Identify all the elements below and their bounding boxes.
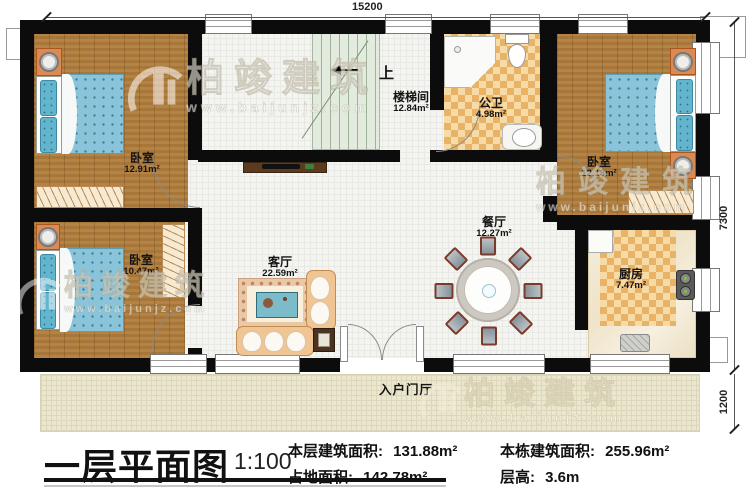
- stairs: [312, 32, 380, 150]
- wardrobe: [628, 190, 694, 214]
- stove-burner: [680, 286, 691, 297]
- dimension-line-right-lower: [734, 374, 735, 430]
- room-label-bathroom: 公卫 4.98m²: [476, 97, 506, 120]
- room-label-stairwell: 楼梯间 12.84m²: [393, 91, 429, 114]
- dining-chair: [481, 327, 497, 346]
- bed-pillow: [40, 80, 57, 116]
- window: [590, 354, 670, 374]
- room-label-bedroom-top-left: 卧室 12.91m²: [124, 152, 159, 175]
- nightstand-knob: [39, 52, 59, 72]
- window: [453, 354, 545, 374]
- bathroom-sink-basin: [512, 128, 536, 147]
- dimension-line-right-upper: [734, 22, 735, 370]
- room-label-bedroom-top-right: 卧室 12.18m²: [581, 156, 616, 179]
- bed-pillow: [676, 79, 693, 114]
- dining-chair: [524, 283, 543, 299]
- nightstand: [36, 48, 62, 76]
- room-label-kitchen: 厨房 7.47m²: [616, 268, 646, 291]
- dining-table-center: [482, 284, 496, 298]
- tv: [262, 164, 300, 169]
- sofa-cushion: [264, 331, 284, 352]
- window: [150, 354, 207, 374]
- stat-floor-height: 层高: 3.6m: [500, 466, 579, 487]
- wall-bathroom-left: [430, 32, 444, 110]
- nightstand-knob: [38, 227, 58, 247]
- dimension-right-lower: 1200: [718, 390, 730, 414]
- wall-bedroomBL-living-upper: [188, 222, 202, 306]
- wall-kitchen-left: [575, 222, 588, 330]
- window: [692, 268, 720, 312]
- shower-drain: [454, 46, 461, 53]
- nightstand: [670, 48, 696, 75]
- sofa-cushion: [310, 276, 330, 300]
- entry-door-leaf: [416, 326, 424, 362]
- dimension-top: 15200: [352, 1, 383, 13]
- dining-chair: [480, 237, 496, 256]
- stove-burner: [680, 273, 691, 284]
- floor-plan: 上: [0, 0, 750, 494]
- bed-pillow: [40, 292, 56, 329]
- nightstand: [670, 152, 696, 179]
- fridge: [588, 230, 613, 253]
- wall-bathroom-bottom: [430, 150, 545, 162]
- stat-floor-area: 本层建筑面积: 131.88m²: [288, 440, 457, 461]
- room-label-living-room: 客厅 22.59m²: [262, 256, 297, 279]
- sofa-cushion: [310, 301, 330, 325]
- wall-bedrooms-left: [20, 208, 202, 222]
- wall-left: [20, 20, 34, 372]
- coffee-table: [256, 292, 298, 318]
- entry-opening: [340, 358, 424, 372]
- dimension-right-upper: 7300: [718, 206, 730, 230]
- dining-chair: [435, 283, 454, 299]
- stairs-direction-label: 上: [379, 62, 394, 83]
- bed-sheet: [655, 74, 670, 152]
- bed-pillow: [676, 115, 693, 151]
- window: [692, 176, 720, 220]
- plan-title: 一层平面图: [44, 438, 229, 490]
- bed-pillow: [40, 117, 57, 153]
- nightstand-knob: [673, 52, 693, 72]
- sofa-cushion: [242, 331, 262, 352]
- window: [215, 354, 300, 374]
- window: [692, 42, 720, 114]
- sofa-cushion: [286, 331, 306, 352]
- wall-bedroomTL-stair: [188, 32, 202, 160]
- stairs-up-arrow: [341, 69, 358, 71]
- side-table-lamp: [318, 333, 330, 347]
- stat-land-area: 占地面积: 142.78m²: [288, 466, 427, 487]
- nightstand: [36, 224, 60, 250]
- room-label-bedroom-bottom-left: 卧室 10.47m²: [123, 254, 158, 277]
- coffee-table-decor: [263, 298, 273, 308]
- remote: [305, 164, 314, 169]
- wall-bedroomTR-left-stub: [543, 196, 557, 222]
- kitchen-sink: [620, 334, 650, 352]
- dimension-line-top: [45, 17, 705, 18]
- room-label-dining-room: 餐厅 12.27m²: [476, 216, 511, 239]
- room-label-entry-foyer: 入户门厅: [379, 384, 433, 397]
- stairs-up-arrowhead: [331, 65, 341, 75]
- coffee-table-decor: [283, 297, 287, 301]
- plan-scale: 1:100: [234, 448, 292, 475]
- bed-pillow: [40, 254, 56, 291]
- wardrobe: [162, 224, 185, 298]
- nightstand-knob: [673, 156, 693, 176]
- wardrobe: [36, 186, 124, 208]
- toilet-tank: [505, 34, 529, 44]
- stat-building-area: 本栋建筑面积: 255.96m²: [500, 440, 669, 461]
- wall-bathroom-right: [540, 32, 557, 162]
- title-block: 一层平面图 1:100 本层建筑面积: 131.88m² 占地面积: 142.7…: [0, 436, 750, 494]
- entry-door-leaf: [340, 326, 348, 362]
- wall-stair-living: [198, 150, 400, 162]
- entry-porch-floor: [40, 374, 700, 432]
